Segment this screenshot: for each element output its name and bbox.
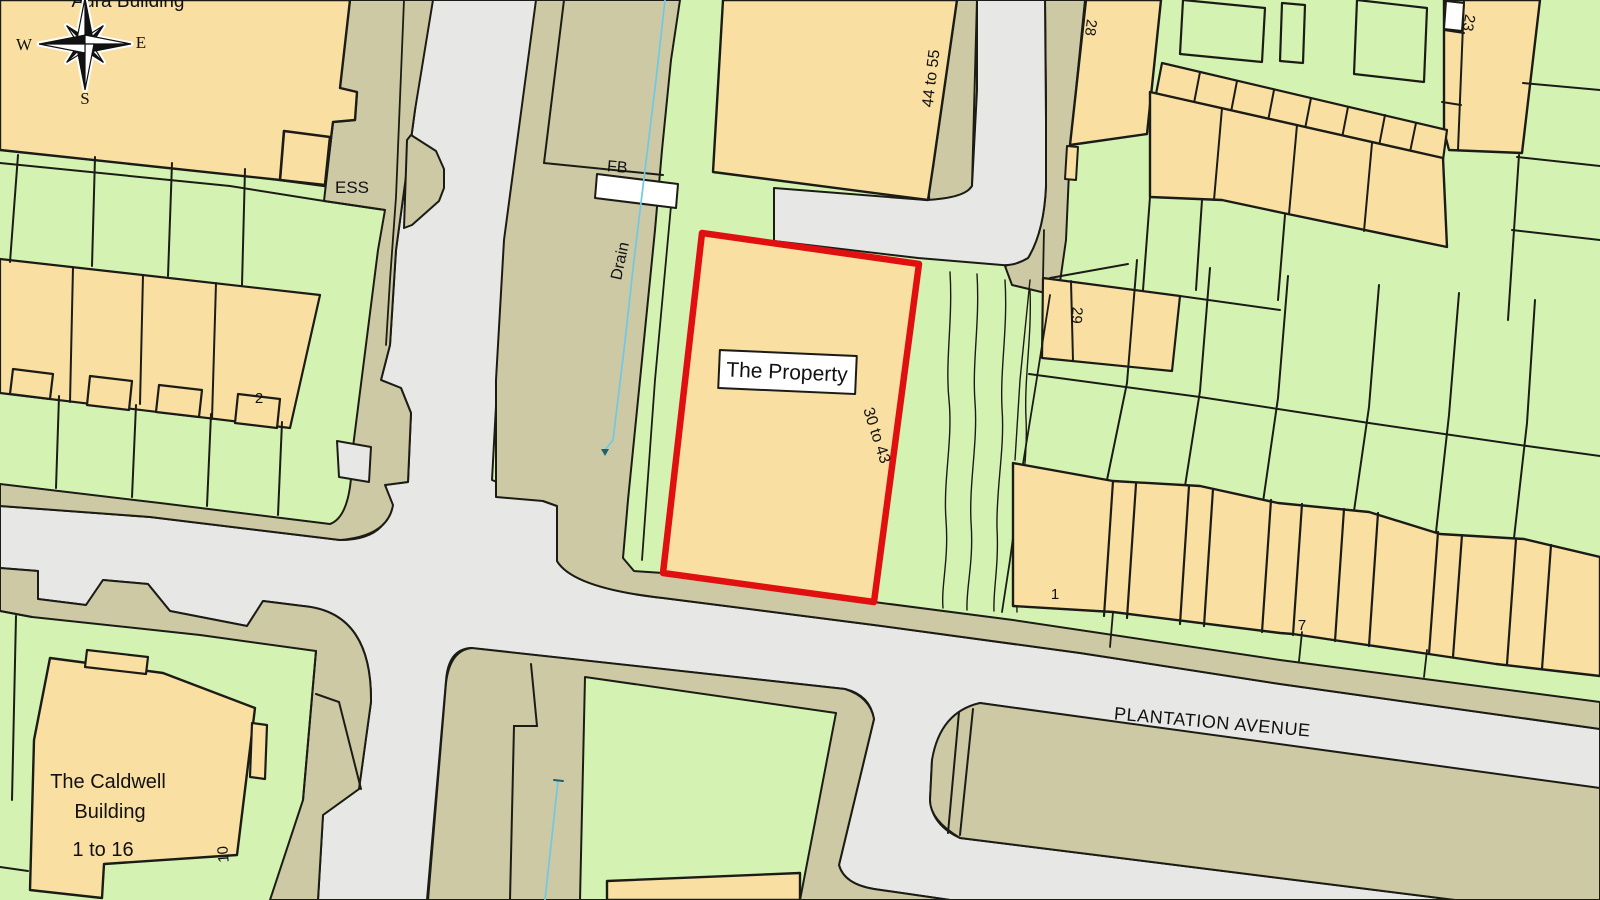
svg-text:E: E <box>136 33 146 52</box>
svg-text:The Caldwell: The Caldwell <box>50 771 166 793</box>
svg-text:FB: FB <box>606 158 628 177</box>
svg-text:1: 1 <box>1051 586 1059 603</box>
svg-text:W: W <box>16 35 33 54</box>
svg-text:Building: Building <box>74 801 145 823</box>
svg-text:2: 2 <box>255 390 263 407</box>
svg-text:23: 23 <box>1459 13 1479 32</box>
svg-text:10: 10 <box>214 845 232 863</box>
svg-text:7: 7 <box>1298 617 1306 634</box>
svg-text:S: S <box>80 89 89 108</box>
svg-text:29: 29 <box>1067 306 1085 324</box>
svg-text:ESS: ESS <box>335 178 369 197</box>
svg-text:28: 28 <box>1081 18 1100 37</box>
svg-text:1 to 16: 1 to 16 <box>72 839 133 861</box>
